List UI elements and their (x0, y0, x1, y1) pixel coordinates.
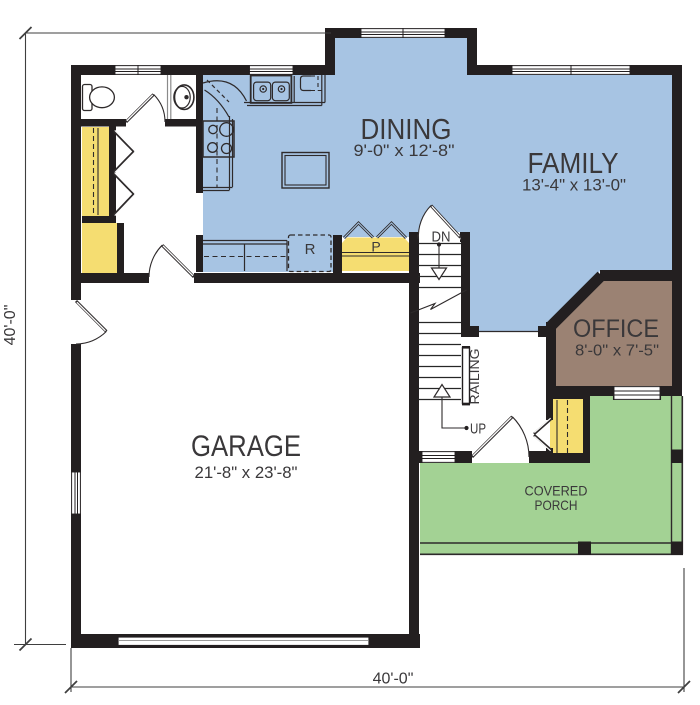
svg-text:UP: UP (470, 421, 486, 438)
svg-text:P: P (371, 239, 380, 255)
svg-text:RAILING: RAILING (468, 349, 482, 405)
svg-text:8'-0" x 7'-5": 8'-0" x 7'-5" (575, 343, 659, 360)
svg-text:21'-8" x 23'-8": 21'-8" x 23'-8" (195, 463, 298, 482)
svg-text:FAMILY: FAMILY (528, 148, 619, 180)
svg-text:GARAGE: GARAGE (191, 430, 301, 463)
svg-text:DN: DN (432, 229, 451, 246)
svg-text:9'-0" x 12'-8": 9'-0" x 12'-8" (354, 142, 455, 160)
svg-text:40'-0": 40'-0" (373, 671, 414, 688)
svg-text:40'-0": 40'-0" (2, 305, 19, 346)
svg-text:OFFICE: OFFICE (573, 315, 659, 343)
svg-text:PORCH: PORCH (535, 497, 578, 513)
svg-text:R: R (305, 241, 316, 258)
svg-text:13'-4" x 13'-0": 13'-4" x 13'-0" (522, 177, 626, 195)
